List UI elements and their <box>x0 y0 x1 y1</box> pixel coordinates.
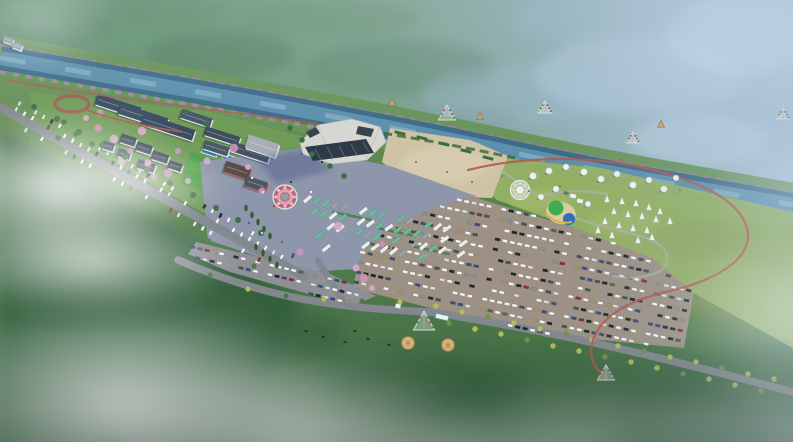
roadside-tree <box>537 326 542 331</box>
dome-tent <box>563 164 569 170</box>
person <box>528 190 530 192</box>
blossom-tree <box>369 285 375 291</box>
prayer-flag <box>598 377 600 379</box>
conical-tree <box>250 212 253 219</box>
green-tree <box>287 125 293 131</box>
roadside-tree <box>115 187 120 192</box>
person <box>290 181 292 183</box>
roadside-tree <box>31 104 37 110</box>
blossom-tree <box>245 164 251 170</box>
blossom-tree <box>127 148 133 154</box>
roadside-tree <box>167 180 173 186</box>
prayer-flag <box>608 369 610 371</box>
prayer-flag <box>439 117 441 119</box>
person <box>248 222 250 224</box>
roadside-tree <box>433 303 438 308</box>
blossom-tree <box>164 169 172 177</box>
roadside-tree <box>459 309 464 314</box>
blossom-tree <box>258 187 265 194</box>
flower-mandala-petal <box>284 205 287 208</box>
flower-mandala-petal <box>293 196 296 199</box>
roadside-tree <box>628 359 633 364</box>
prayer-flag <box>776 116 778 118</box>
green-tree <box>327 163 333 169</box>
blossom-tree <box>230 144 238 152</box>
meadow-texture <box>570 375 750 425</box>
prayer-flag <box>638 140 640 142</box>
roadside-tree <box>251 263 256 268</box>
prayer-flag <box>626 140 628 142</box>
roadside-tree <box>602 354 607 359</box>
roadside-tree <box>615 343 620 348</box>
person <box>251 177 253 179</box>
prayer-flag <box>441 113 443 115</box>
roadside-tree <box>122 154 128 160</box>
dome-tent <box>630 182 637 189</box>
roadside-tree <box>680 371 685 376</box>
prayer-flag <box>788 116 790 118</box>
prayer-flag <box>548 107 550 109</box>
mountain-ridge <box>240 0 420 36</box>
dome-tent <box>661 186 667 192</box>
aerial-site-rendering <box>0 0 793 442</box>
roadside-tree <box>641 348 646 353</box>
roadside-tree <box>321 296 326 301</box>
conical-tree <box>244 205 247 212</box>
prayer-flag <box>542 104 544 106</box>
green-tree <box>341 173 347 179</box>
roadside-tree <box>524 337 529 342</box>
roadside-tree <box>160 212 165 217</box>
roadside-tree <box>472 326 477 331</box>
person <box>262 191 264 193</box>
roadside-tree <box>693 359 698 364</box>
prayer-flag <box>602 369 604 371</box>
roadside-tree <box>190 192 196 198</box>
flower-mandala-petal <box>277 202 280 205</box>
conical-tree <box>256 219 259 226</box>
dome-tent <box>598 176 604 182</box>
meadow-texture <box>330 360 530 420</box>
person <box>321 161 323 163</box>
roadside-tree <box>654 365 659 370</box>
person <box>501 175 503 177</box>
conical-tree <box>261 250 264 257</box>
prayer-flag <box>634 135 636 137</box>
blossom-tree <box>296 248 303 255</box>
prayer-flag <box>538 110 540 112</box>
prayer-flag <box>417 321 419 323</box>
blossom-tree <box>185 178 191 184</box>
roadside-tree <box>706 376 711 381</box>
roadside-tree <box>485 314 490 319</box>
roadside-tree <box>144 167 150 173</box>
roadside-tree <box>283 293 288 298</box>
roadside-tree <box>719 365 724 370</box>
prayer-flag <box>451 113 453 115</box>
roadside-tree <box>24 137 29 142</box>
conical-tree <box>268 233 271 240</box>
blossom-tree <box>151 174 157 180</box>
roadside-tree <box>576 348 581 353</box>
prayer-flag <box>786 114 788 116</box>
blossom-tree <box>203 157 210 164</box>
roadside-tree <box>99 142 105 148</box>
prayer-flag <box>612 377 614 379</box>
dome-tent <box>530 173 537 180</box>
dome-tent <box>614 171 620 177</box>
person <box>415 161 417 163</box>
roadside-tree <box>563 331 568 336</box>
person <box>261 232 263 234</box>
roadside-tree <box>550 343 555 348</box>
dome-tent <box>553 186 559 192</box>
kiosk <box>395 303 401 308</box>
prayer-flag <box>540 107 542 109</box>
roadside-tree <box>213 205 219 211</box>
green-tree <box>55 135 61 141</box>
prayer-flag <box>636 138 638 140</box>
roadside-tree <box>76 129 82 135</box>
blossom-tree <box>175 148 181 154</box>
roadside-tree <box>359 298 364 303</box>
dome-tent <box>673 175 679 181</box>
roadside-tree <box>771 376 776 381</box>
prayer-flag <box>784 111 786 113</box>
person <box>471 181 473 183</box>
person <box>281 241 283 243</box>
dome-tent <box>585 201 591 207</box>
conical-tree <box>268 256 271 263</box>
blossom-tree <box>360 274 368 282</box>
blossom-tree <box>334 222 342 230</box>
conical-tree <box>275 262 278 269</box>
green-tree <box>61 119 67 125</box>
prayer-flag <box>610 373 612 375</box>
person <box>619 159 621 161</box>
dome-tent <box>646 177 652 183</box>
person <box>559 185 561 187</box>
scene-canvas <box>0 0 793 442</box>
blossom-tree <box>110 135 118 143</box>
yurt-roof-ring <box>406 341 410 345</box>
blossom-tree <box>379 241 385 247</box>
person <box>301 153 303 155</box>
roadside-tree <box>69 162 74 167</box>
dome-tent <box>538 194 544 200</box>
blossom-tree <box>144 159 151 166</box>
prayer-flag <box>429 321 431 323</box>
blossom-tree <box>94 124 101 131</box>
green-tree <box>203 121 209 127</box>
green-tree <box>89 141 95 147</box>
flower-mandala-petal <box>274 196 277 199</box>
prayer-flag <box>778 114 780 116</box>
flower-mandala-petal <box>277 189 280 192</box>
blossom-tree <box>83 115 89 121</box>
person <box>310 191 312 193</box>
flower-mandala-petal <box>290 202 293 205</box>
roadside-tree <box>732 382 737 387</box>
flower-mandala-petal <box>290 189 293 192</box>
prayer-flag <box>432 326 434 328</box>
roadside-tree <box>235 217 241 223</box>
roadside-tree <box>511 320 516 325</box>
person <box>679 189 681 191</box>
roadside-tree <box>245 286 250 291</box>
stone-mandala-core <box>517 187 524 194</box>
prayer-flag <box>453 117 455 119</box>
roadside-tree <box>207 272 212 277</box>
roadside-tree <box>54 116 60 122</box>
roadside-tree <box>206 238 211 243</box>
roadside-tree <box>667 354 672 359</box>
green-tree <box>299 137 305 143</box>
playground-green-circle <box>549 201 564 216</box>
prayer-flag <box>550 110 552 112</box>
roadside-tree <box>498 331 503 336</box>
prayer-flag <box>449 109 451 111</box>
prayer-flag <box>443 109 445 111</box>
prayer-flag <box>628 138 630 140</box>
prayer-flag <box>780 111 782 113</box>
green-tree <box>183 109 189 115</box>
person <box>446 171 448 173</box>
prayer-flag <box>600 373 602 375</box>
green-tree <box>309 151 315 157</box>
prayer-flag <box>419 317 421 319</box>
dome-tent <box>546 168 552 174</box>
conical-tree <box>254 244 257 251</box>
person <box>273 205 275 207</box>
prayer-flag <box>630 135 632 137</box>
prayer-flag <box>414 326 416 328</box>
flower-mandala-petal <box>284 186 287 189</box>
dome-tent <box>581 169 588 176</box>
roadside-tree <box>745 371 750 376</box>
blossom-tree <box>352 264 359 271</box>
prayer-flag <box>427 317 429 319</box>
lawn-patch <box>655 220 745 260</box>
yurt-roof-ring <box>446 343 450 347</box>
roadside-tree <box>758 388 763 393</box>
prayer-flag <box>546 104 548 106</box>
blossom-tree <box>138 127 146 135</box>
